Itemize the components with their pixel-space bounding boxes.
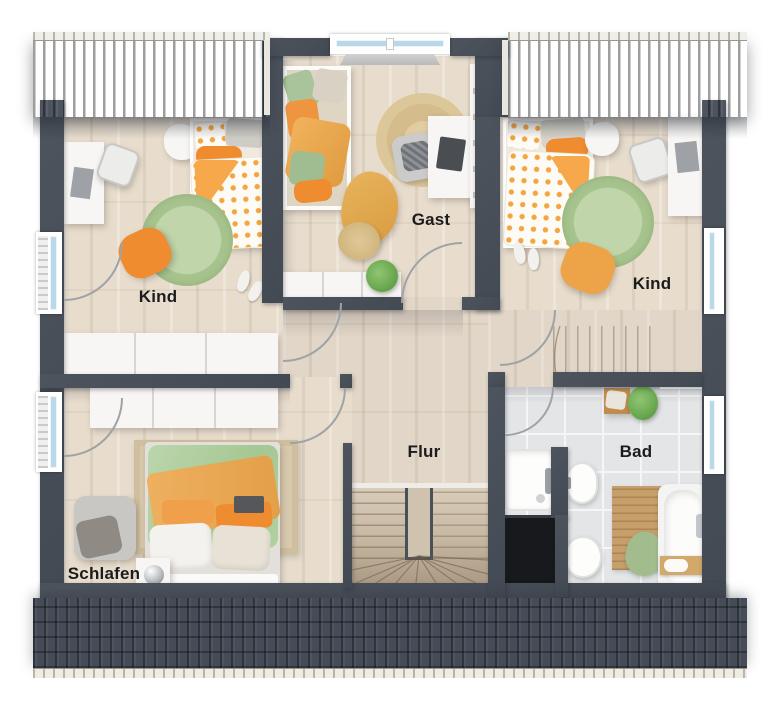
floorplan-canvas: Kind Gast Kind Schlafen Flur Bad xyxy=(0,0,775,705)
gutter-top-left xyxy=(33,32,270,41)
roof-bottom xyxy=(33,598,747,668)
door-arc-kind-right xyxy=(500,310,555,365)
door-arc-kind-left xyxy=(283,303,341,361)
room-label-gast: Gast xyxy=(412,210,451,230)
room-label-flur: Flur xyxy=(408,442,441,462)
window-arc-kind-left xyxy=(64,242,122,300)
door-arc-bad xyxy=(505,387,553,435)
door-arc-gast xyxy=(402,243,462,303)
gutter-top-right xyxy=(508,32,747,41)
room-label-bad: Bad xyxy=(620,442,653,462)
window-arc-schlafen xyxy=(64,398,122,456)
gutter-bottom xyxy=(33,668,747,678)
room-label-schlafen: Schlafen xyxy=(68,564,140,584)
stair-winder-lines xyxy=(352,326,560,583)
roof-edge-left xyxy=(264,40,270,115)
room-label-kind-right: Kind xyxy=(633,274,672,294)
roof-top-left xyxy=(33,40,270,117)
room-label-kind-left: Kind xyxy=(139,287,178,307)
door-arc-schlafen xyxy=(290,388,345,443)
roof-edge-right xyxy=(502,40,508,115)
roof-top-right xyxy=(508,40,747,117)
